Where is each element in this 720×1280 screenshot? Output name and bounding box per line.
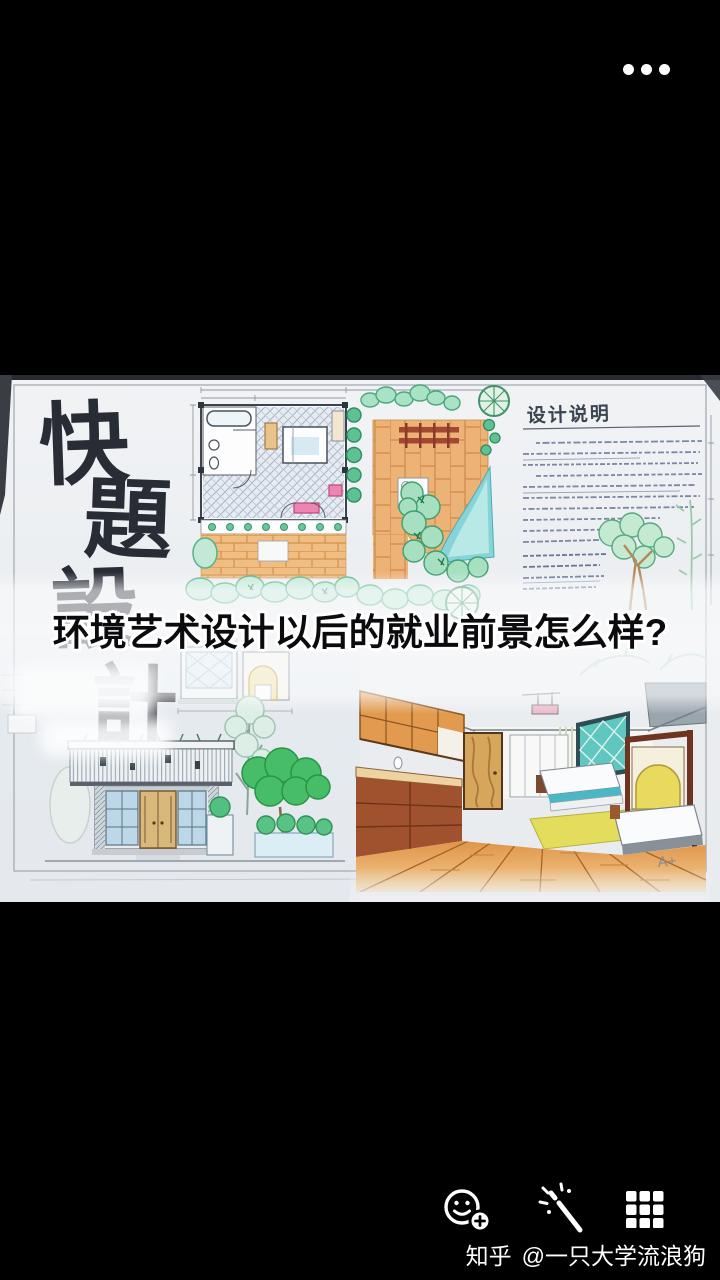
magic-wand-icon [538,1182,588,1236]
notes-title: 设计说明 [527,402,612,427]
wood-door [464,733,502,809]
watermark: 知乎@一只大学流浪狗 [466,1237,706,1271]
artist-signature: A+ [657,853,677,871]
grid-layout-button[interactable] [625,1190,665,1228]
magic-edit-button[interactable] [538,1182,588,1236]
add-sticker-button[interactable] [437,1184,493,1238]
more-options-button[interactable] [621,62,672,77]
sticker-smiley-icon [437,1184,493,1238]
watermark-author: @一只大学流浪狗 [522,1243,706,1269]
more-icon [623,64,634,75]
watermark-brand: 知乎 [466,1243,512,1269]
more-icon [641,64,652,75]
more-icon [659,64,670,75]
question-title: 环境艺术设计以后的就业前景怎么样? [0,608,720,658]
blur-patch [40,718,172,756]
calligraphy-char: 題 [82,468,173,570]
grid-icon [625,1190,665,1228]
image-viewer-screen: 快 題 設 計 [0,0,720,1280]
